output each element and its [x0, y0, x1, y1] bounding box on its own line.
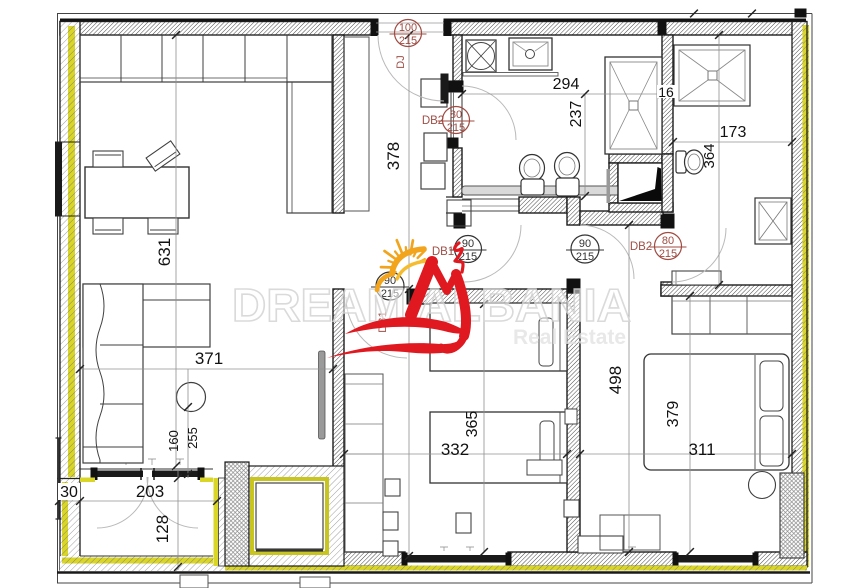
svg-text:DJ: DJ — [395, 55, 407, 68]
svg-text:364: 364 — [701, 143, 718, 168]
svg-text:160: 160 — [166, 430, 181, 452]
svg-text:215: 215 — [576, 251, 594, 263]
svg-text:215: 215 — [399, 35, 417, 47]
svg-text:90: 90 — [579, 238, 591, 250]
svg-text:30: 30 — [60, 484, 78, 501]
svg-text:311: 311 — [688, 440, 715, 459]
svg-text:203: 203 — [136, 482, 164, 501]
svg-text:DB2: DB2 — [422, 115, 444, 127]
svg-text:128: 128 — [153, 515, 172, 543]
svg-text:498: 498 — [606, 366, 625, 394]
svg-text:DB2: DB2 — [630, 241, 652, 253]
svg-text:100: 100 — [399, 22, 417, 34]
svg-text:80: 80 — [450, 109, 462, 121]
svg-text:378: 378 — [384, 142, 403, 170]
svg-text:173: 173 — [720, 124, 747, 141]
svg-text:294: 294 — [553, 76, 580, 93]
svg-text:80: 80 — [662, 235, 674, 247]
svg-text:90: 90 — [462, 238, 474, 250]
svg-text:379: 379 — [665, 401, 682, 428]
svg-text:DB1: DB1 — [432, 246, 454, 258]
svg-text:215: 215 — [447, 122, 465, 134]
svg-text:631: 631 — [155, 238, 174, 266]
svg-text:255: 255 — [185, 427, 200, 449]
svg-text:215: 215 — [659, 248, 677, 260]
svg-text:16: 16 — [658, 84, 674, 100]
svg-text:365: 365 — [464, 411, 481, 438]
svg-text:371: 371 — [195, 349, 223, 368]
svg-text:237: 237 — [568, 101, 585, 128]
svg-text:332: 332 — [441, 440, 469, 459]
svg-text:Real Estate: Real Estate — [513, 326, 626, 349]
